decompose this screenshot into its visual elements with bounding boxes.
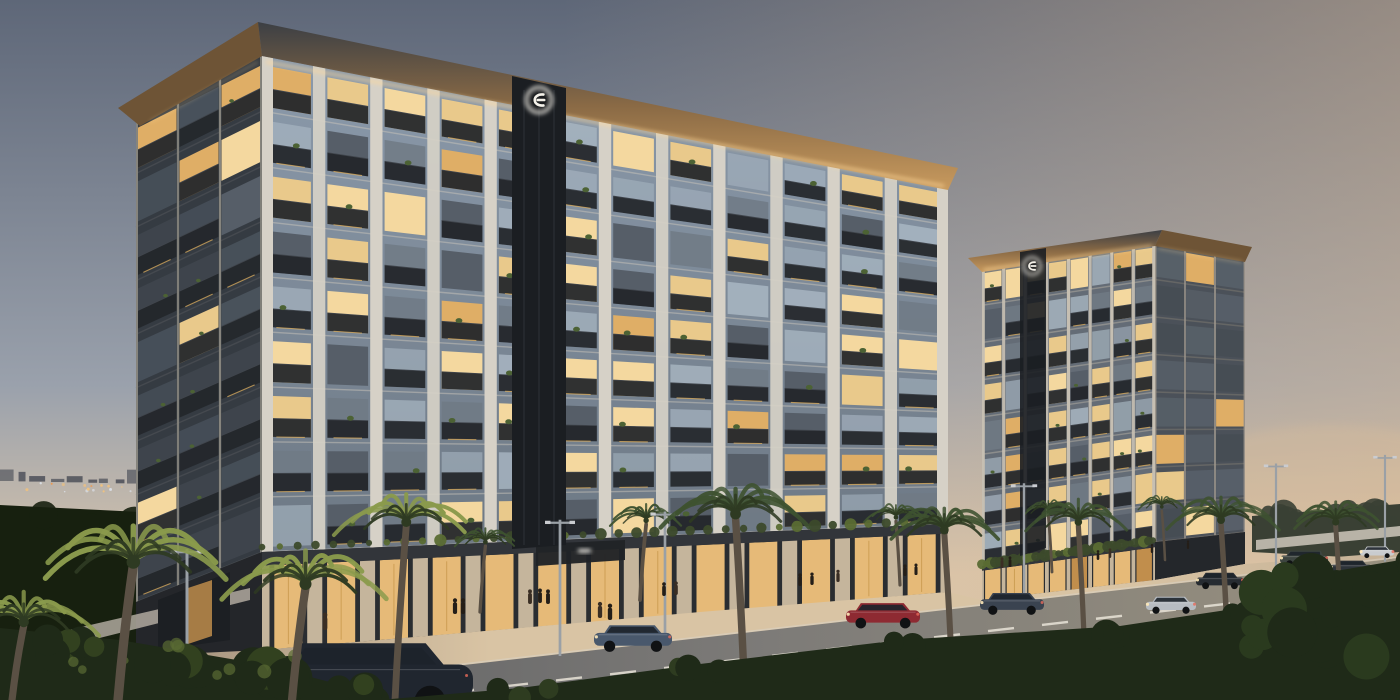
pedestrian: [546, 589, 550, 604]
pedestrian: [836, 570, 839, 582]
dusk-architecture-rendering: [0, 0, 1400, 700]
pedestrian: [1151, 544, 1153, 553]
pedestrian: [1109, 548, 1112, 558]
pedestrian: [528, 589, 532, 604]
developer-logo-icon: [1023, 257, 1041, 275]
pedestrian: [453, 598, 457, 614]
entrance-canopy-sign: [578, 549, 591, 553]
pedestrian: [461, 598, 465, 614]
developer-logo-icon: [526, 87, 552, 113]
pedestrian: [1009, 556, 1012, 567]
pedestrian: [323, 613, 328, 630]
pedestrian: [1097, 550, 1100, 560]
pedestrian: [662, 582, 666, 596]
pedestrian: [674, 581, 678, 595]
pedestrian: [903, 564, 906, 576]
pedestrian: [608, 604, 612, 620]
pedestrian: [1187, 540, 1189, 549]
pedestrian: [538, 588, 542, 603]
rendered-scene: [0, 0, 1400, 700]
pedestrian: [914, 564, 917, 575]
pedestrian: [798, 573, 801, 586]
pedestrian: [598, 602, 602, 618]
secondary-building: [968, 230, 1252, 600]
pedestrian: [1001, 557, 1004, 568]
pedestrian: [810, 572, 813, 585]
